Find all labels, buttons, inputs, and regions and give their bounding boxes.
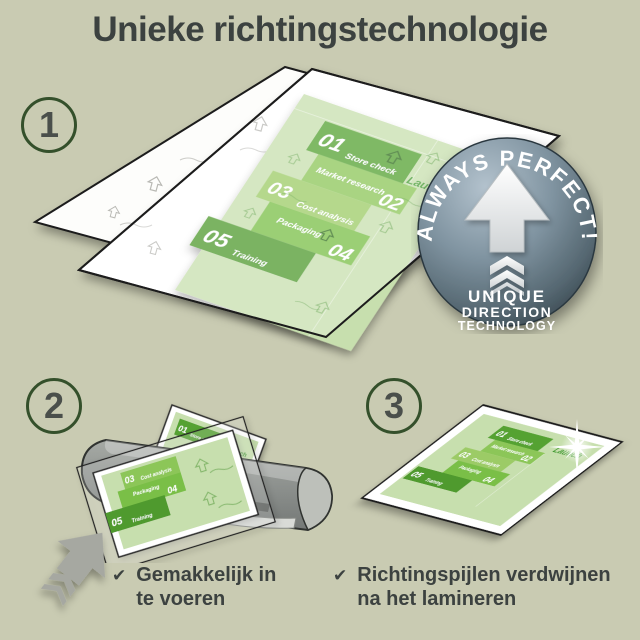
checklist-item-2: ✔ Richtingspijlen verdwijnen na het lami… — [333, 563, 611, 611]
always-perfect-badge: ALWAYS PERFECT! UNIQUE DIRECTION TECHNOL… — [411, 134, 603, 334]
infographic-canvas: Unieke richtingstechnologie — [0, 0, 640, 640]
badge-line3: TECHNOLOGY — [458, 319, 556, 333]
checklist-item-1: ✔ Gemakkelijk in te voeren — [112, 563, 276, 611]
check-icon: ✔ — [112, 566, 126, 611]
checklist-item-2-line1: Richtingspijlen verdwijnen — [357, 563, 610, 587]
page-title: Unieke richtingstechnologie — [0, 10, 640, 50]
check-icon: ✔ — [333, 566, 347, 611]
badge-line2: DIRECTION — [462, 304, 553, 320]
checklist-item-1-line2: te voeren — [136, 587, 276, 611]
checklist-item-1-line1: Gemakkelijk in — [136, 563, 276, 587]
checklist-item-2-line2: na het lamineren — [357, 587, 610, 611]
step3-laminated-document: 01 Store check Market research 02 03 Cos… — [340, 380, 640, 565]
step-number-1: 1 — [21, 97, 77, 153]
laminated-sheet: 01 Store check Market research 02 03 Cos… — [362, 405, 622, 535]
